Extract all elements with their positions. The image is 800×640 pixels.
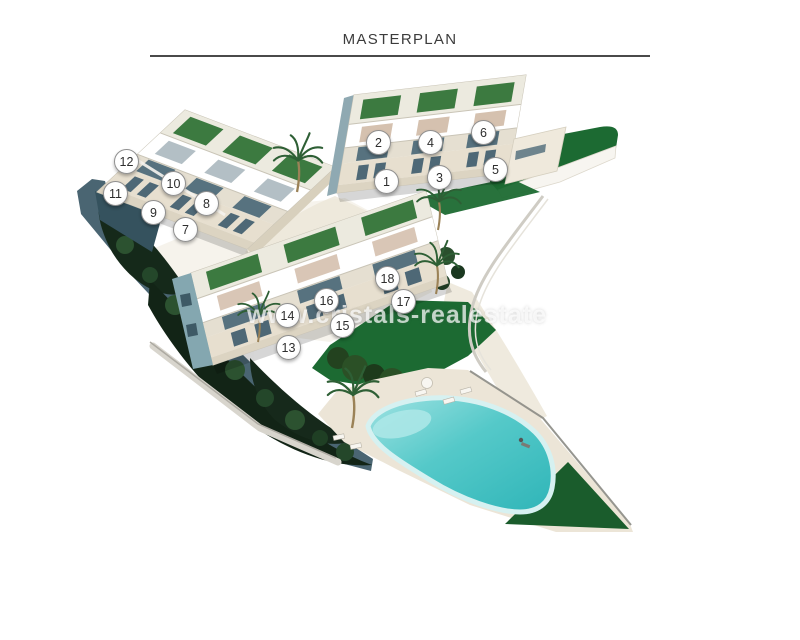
unit-marker-4[interactable]: 4	[418, 130, 443, 155]
unit-marker-3[interactable]: 3	[427, 165, 452, 190]
unit-marker-7[interactable]: 7	[173, 217, 198, 242]
unit-marker-18[interactable]: 18	[375, 266, 400, 291]
unit-marker-15[interactable]: 15	[330, 313, 355, 338]
unit-marker-13[interactable]: 13	[276, 335, 301, 360]
parasol	[422, 378, 433, 389]
unit-marker-10[interactable]: 10	[161, 171, 186, 196]
masterplan-illustration	[0, 0, 800, 640]
unit-marker-12[interactable]: 12	[114, 149, 139, 174]
unit-marker-2[interactable]: 2	[366, 130, 391, 155]
masterplan-page: MASTERPLAN	[0, 0, 800, 640]
unit-marker-16[interactable]: 16	[314, 288, 339, 313]
unit-marker-5[interactable]: 5	[483, 157, 508, 182]
unit-marker-6[interactable]: 6	[471, 120, 496, 145]
unit-marker-9[interactable]: 9	[141, 200, 166, 225]
unit-marker-8[interactable]: 8	[194, 191, 219, 216]
unit-marker-1[interactable]: 1	[374, 169, 399, 194]
unit-marker-11[interactable]: 11	[103, 181, 128, 206]
title-underline	[150, 55, 650, 57]
page-title: MASTERPLAN	[0, 31, 800, 48]
unit-marker-14[interactable]: 14	[275, 303, 300, 328]
unit-marker-17[interactable]: 17	[391, 289, 416, 314]
